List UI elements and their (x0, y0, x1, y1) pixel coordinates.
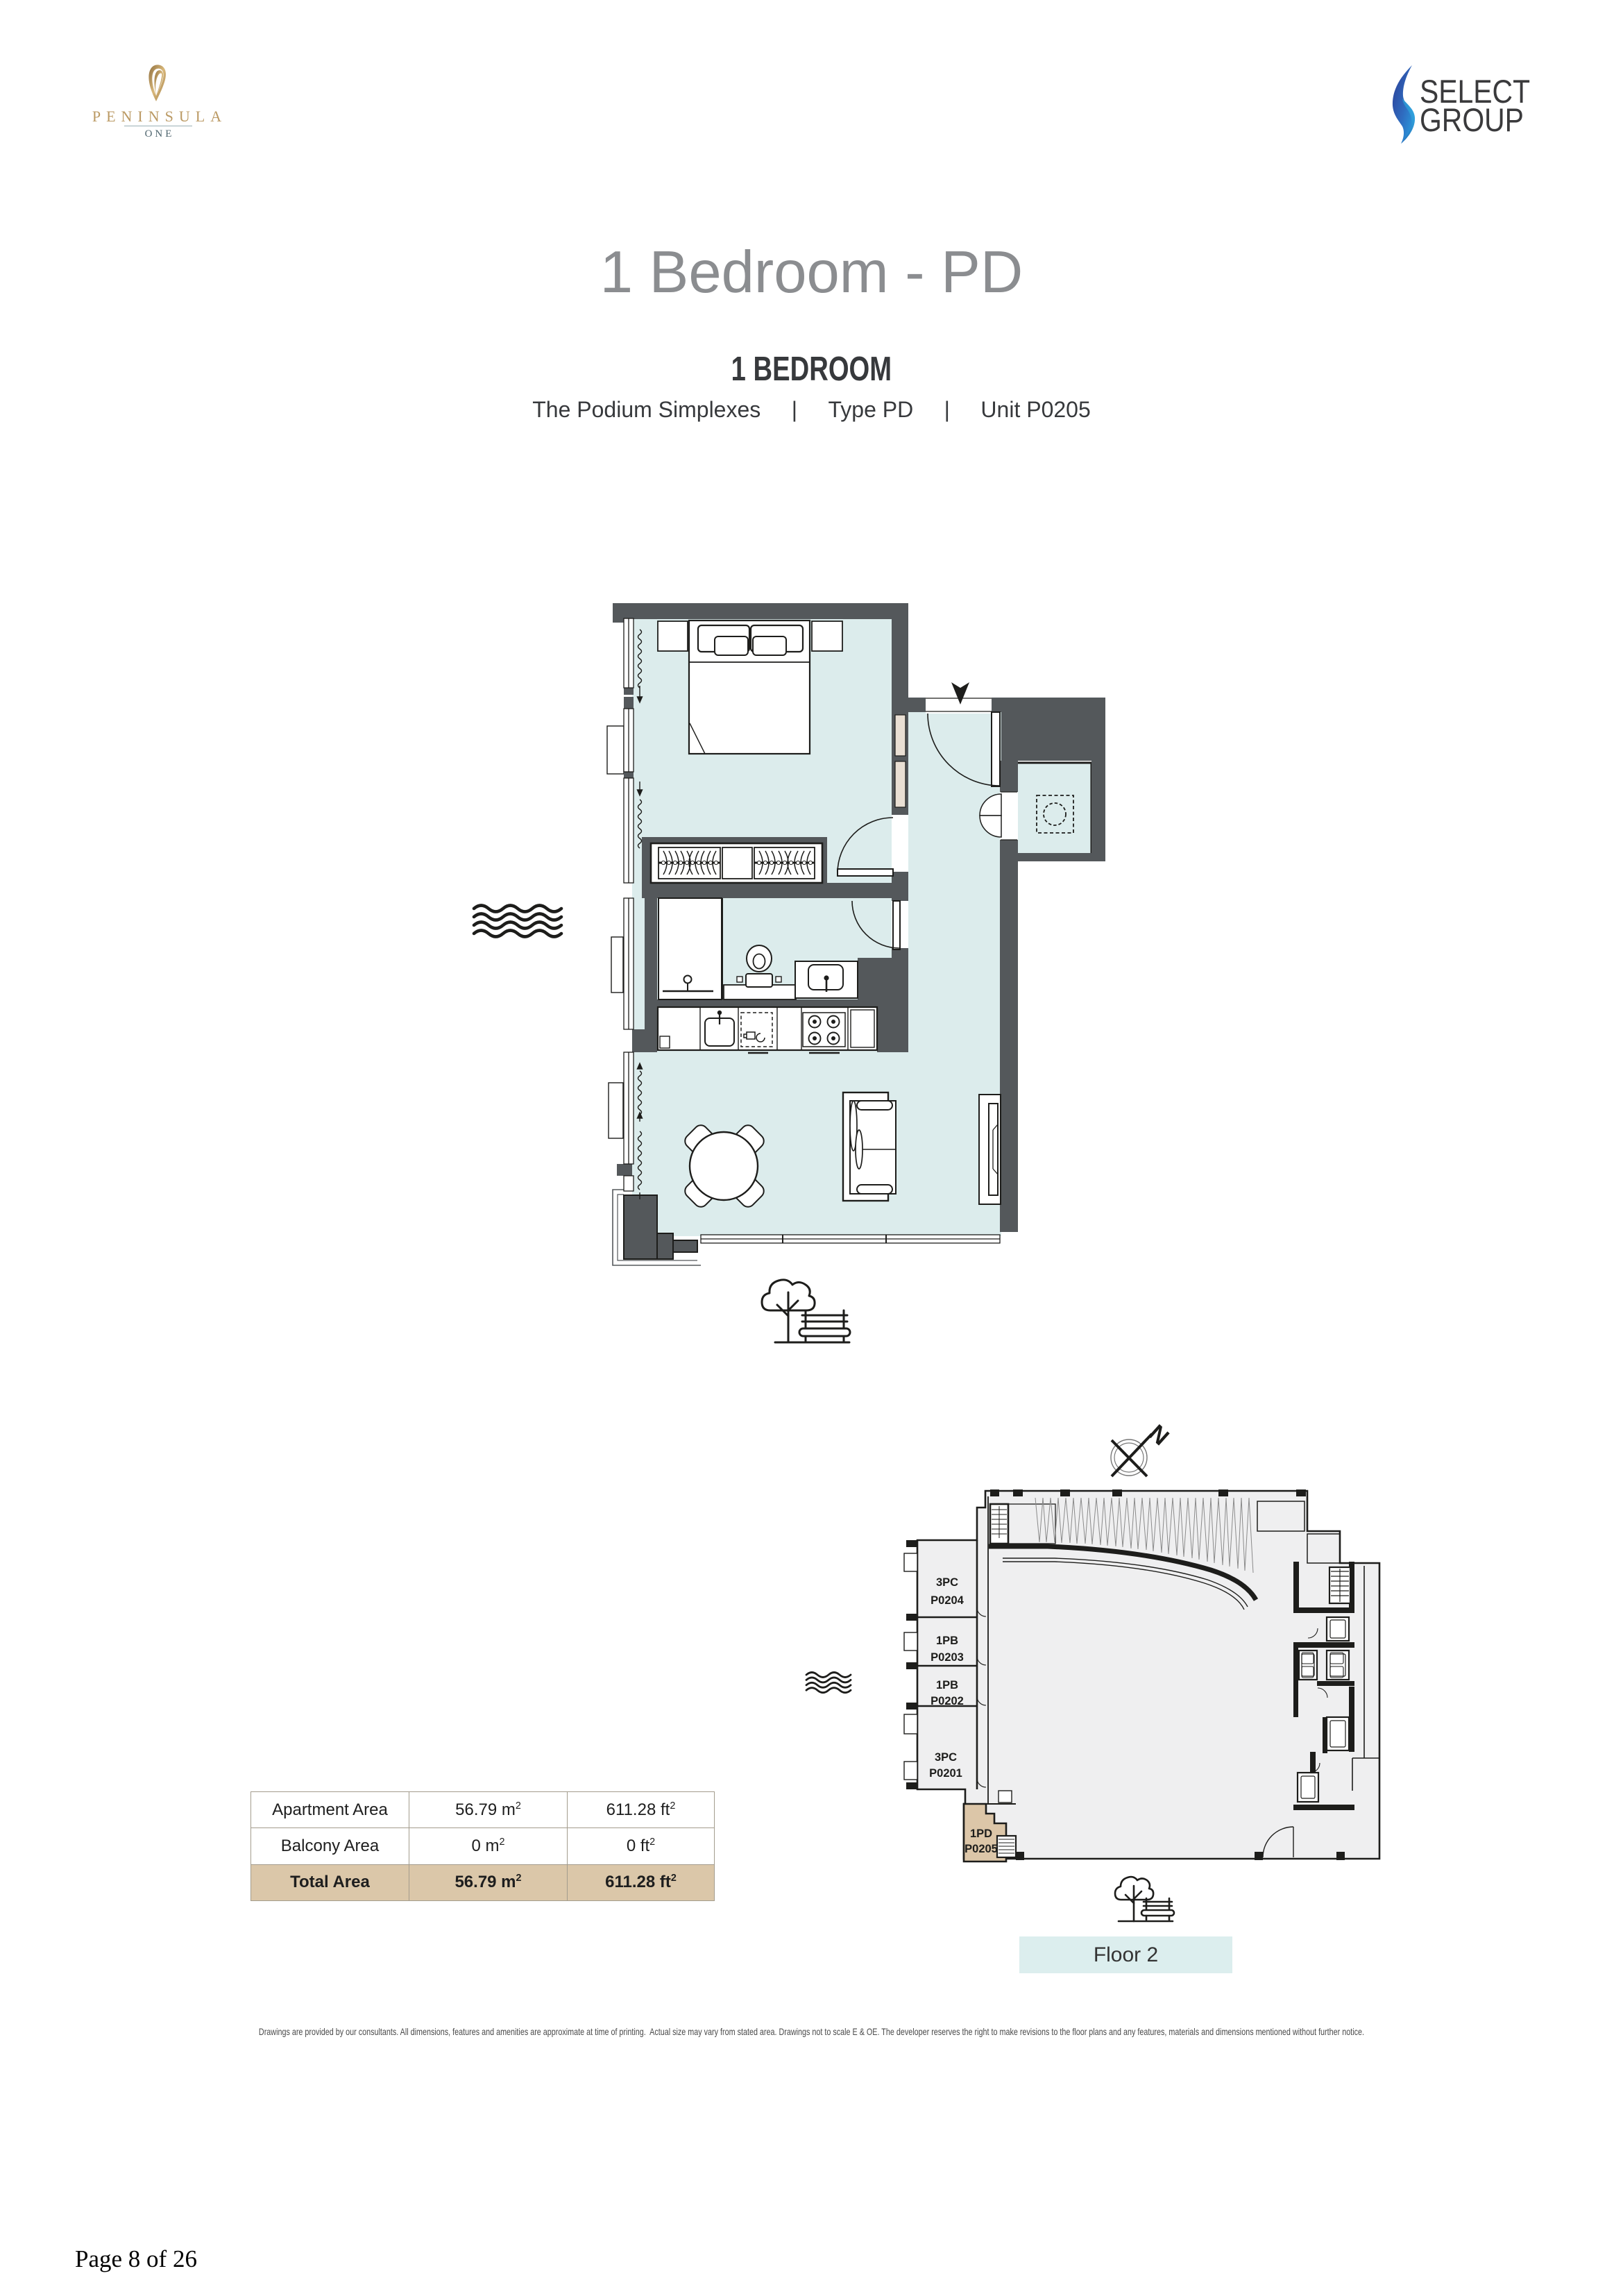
svg-text:1PB: 1PB (936, 1679, 958, 1691)
svg-text:P0203: P0203 (931, 1651, 964, 1664)
svg-text:P0205: P0205 (965, 1843, 998, 1855)
svg-text:N: N (1144, 1419, 1174, 1451)
svg-text:3PC: 3PC (935, 1751, 957, 1764)
svg-text:P0201: P0201 (929, 1767, 962, 1780)
svg-text:1PB: 1PB (936, 1635, 958, 1647)
svg-text:1PD: 1PD (970, 1827, 992, 1840)
svg-text:P0202: P0202 (931, 1695, 964, 1707)
svg-text:3PC: 3PC (936, 1576, 958, 1589)
svg-text:P0204: P0204 (931, 1594, 965, 1607)
